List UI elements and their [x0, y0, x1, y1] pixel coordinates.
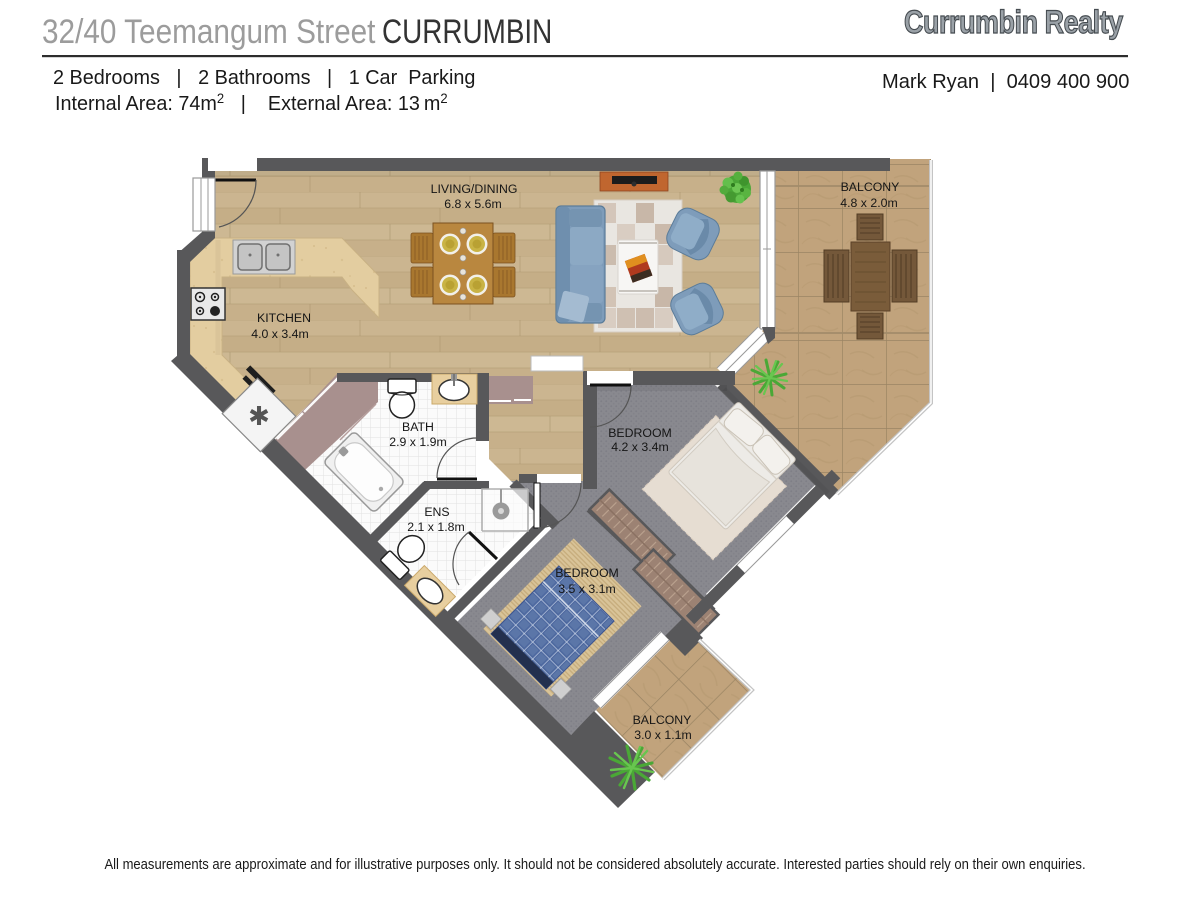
svg-text:✱: ✱	[248, 401, 270, 431]
svg-text:KITCHEN: KITCHEN	[257, 311, 311, 325]
svg-text:BEDROOM: BEDROOM	[608, 426, 672, 440]
svg-text:3.0 x 1.1m: 3.0 x 1.1m	[634, 728, 691, 742]
svg-text:BEDROOM: BEDROOM	[555, 566, 619, 580]
svg-text:ENS: ENS	[424, 505, 449, 519]
svg-text:4.2 x 3.4m: 4.2 x 3.4m	[611, 440, 668, 454]
svg-text:BALCONY: BALCONY	[633, 713, 692, 727]
svg-text:6.8 x 5.6m: 6.8 x 5.6m	[444, 197, 501, 211]
svg-text:LIVING/DINING: LIVING/DINING	[431, 182, 518, 196]
svg-text:2.9 x 1.9m: 2.9 x 1.9m	[389, 435, 446, 449]
svg-text:2.1 x 1.8m: 2.1 x 1.8m	[407, 520, 464, 534]
svg-text:4.0 x 3.4m: 4.0 x 3.4m	[251, 327, 308, 341]
svg-text:BALCONY: BALCONY	[841, 180, 900, 194]
svg-text:BATH: BATH	[402, 420, 434, 434]
svg-text:3.5 x 3.1m: 3.5 x 3.1m	[558, 582, 615, 596]
svg-text:4.8 x 2.0m: 4.8 x 2.0m	[840, 196, 897, 210]
